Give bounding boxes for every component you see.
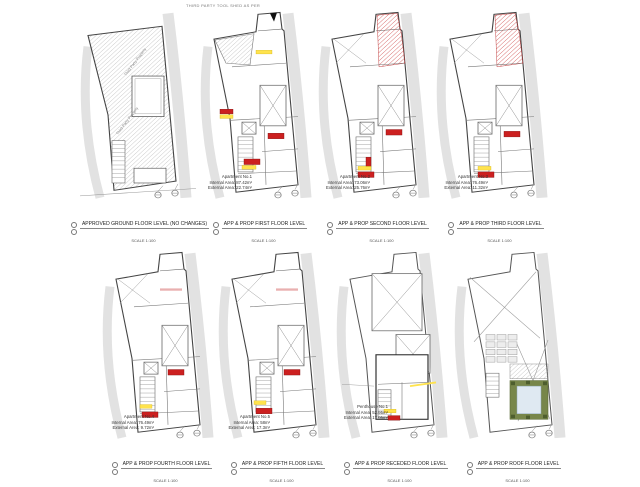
note-highlight — [140, 405, 152, 409]
solar-panel — [497, 334, 506, 340]
roof-courtyard — [517, 386, 541, 414]
panel-title-block: APP & PROP ROOF FLOOR LEVEL SCALE 1:100 — [452, 461, 576, 487]
panel-title-block: APP & PROP FIRST FLOOR LEVEL SCALE 1:100 — [198, 221, 322, 247]
proposed-change-marker — [386, 130, 402, 136]
panel-title-block: APPROVED GROUND FLOOR LEVEL (NO CHANGES)… — [78, 221, 202, 247]
grid-bubble-icon — [71, 222, 77, 235]
note-highlight — [256, 50, 272, 54]
floor-plan-panel-second: Apartment No.2Internal Area: 73.06m²Exte… — [316, 6, 440, 247]
proposed-change-marker — [366, 157, 371, 166]
grid-bubble-icon — [448, 222, 454, 235]
panel-title: APP & PROP FIRST FLOOR LEVEL — [222, 221, 307, 229]
panel-title-block: APP & PROP RECEDED FLOOR LEVEL SCALE 1:1… — [334, 461, 458, 487]
receded-floor-plan-drawing — [334, 246, 454, 458]
drawing-sheet: THIRD PARTY TOOL SHED AS PER Third Party… — [0, 0, 640, 480]
solar-panel — [508, 349, 517, 355]
grid-bubble-icon — [112, 462, 118, 475]
solar-panel — [486, 342, 495, 348]
panel-title: APP & PROP SECOND FLOOR LEVEL — [336, 221, 428, 229]
panel-title-block: APP & PROP FOURTH FLOOR LEVEL SCALE 1:10… — [100, 461, 224, 487]
note-highlight — [220, 115, 233, 119]
grid-bubble-icon — [467, 462, 473, 475]
apartment-info: Apartment No.2Internal Area: 73.06m²Exte… — [310, 174, 370, 191]
proposed-change-marker — [268, 133, 284, 139]
grid-bubble-icon — [231, 462, 237, 475]
apartment-info: Apartment No.3Internal Area: 76.49m²Exte… — [428, 174, 488, 191]
solar-panel — [486, 357, 495, 363]
floor-plan-panel-third: Apartment No.3Internal Area: 76.49m²Exte… — [434, 6, 558, 247]
stair — [256, 377, 271, 412]
panel-title: APPROVED GROUND FLOOR LEVEL (NO CHANGES) — [80, 221, 209, 229]
grid-bubble-icon — [344, 462, 350, 475]
grid-bubble-icon — [327, 222, 333, 235]
floor-plan-panel-receded: Penthouse No.1Internal Area: 52.95m²Exte… — [334, 246, 458, 487]
solar-panel — [486, 334, 495, 340]
floor-plan-panel-fourth: Apartment No.4Internal Area: 76.49m²Exte… — [100, 246, 224, 487]
planter — [511, 415, 515, 419]
panel-scale: SCALE 1:100 — [487, 238, 513, 243]
entrance-recess — [134, 168, 166, 183]
panel-scale: SCALE 1:100 — [369, 238, 395, 243]
panel-scale: SCALE 1:100 — [269, 478, 295, 483]
note-highlight — [242, 165, 256, 169]
ground-floor-plan-drawing: Third Party PropertyThird Party Property — [78, 6, 198, 218]
proposed-change-marker — [504, 131, 520, 137]
solar-panel — [508, 334, 517, 340]
planter — [543, 381, 547, 385]
panel-title-block: APP & PROP SECOND FLOOR LEVEL SCALE 1:10… — [316, 221, 440, 247]
solar-panel — [486, 349, 495, 355]
planter — [526, 381, 530, 385]
panel-title: APP & PROP ROOF FLOOR LEVEL — [476, 461, 562, 469]
panel-title: APP & PROP RECEDED FLOOR LEVEL — [353, 461, 449, 469]
removed-area-hatch — [495, 13, 523, 66]
removed-area-hatch — [377, 13, 405, 66]
note-highlight — [254, 401, 266, 405]
panel-scale: SCALE 1:100 — [387, 478, 413, 483]
planter — [511, 381, 515, 385]
floor-plan-panel-roof: APP & PROP ROOF FLOOR LEVEL SCALE 1:100 — [452, 246, 576, 487]
solar-panel — [508, 342, 517, 348]
apartment-info: Apartment No.4Internal Area: 76.49m²Exte… — [94, 414, 154, 431]
panel-scale: SCALE 1:100 — [251, 238, 277, 243]
apartment-info: Apartment No.5Internal Area: 58m²Externa… — [210, 414, 270, 431]
proposed-change-marker — [284, 370, 300, 376]
solar-panel — [497, 357, 506, 363]
solar-panel — [508, 357, 517, 363]
roof-floor-plan-drawing — [452, 246, 572, 458]
terrace-hatch — [510, 364, 548, 379]
panel-title-block: APP & PROP THIRD FLOOR LEVEL SCALE 1:100 — [434, 221, 558, 247]
proposed-change-marker — [220, 109, 233, 114]
panel-scale: SCALE 1:100 — [153, 478, 179, 483]
floor-plan-panel-ground: Third Party PropertyThird Party Property… — [78, 6, 202, 247]
party-wall-band-left — [459, 287, 474, 438]
terrace-edge — [160, 288, 182, 290]
proposed-change-marker — [388, 416, 400, 421]
proposed-change-marker — [168, 370, 184, 376]
proposed-change-marker — [244, 159, 260, 165]
planter — [526, 416, 530, 420]
floor-plan-panel-fifth: Apartment No.5Internal Area: 58m²Externa… — [216, 246, 340, 487]
stair — [112, 141, 125, 183]
planter — [543, 415, 547, 419]
panel-title: APP & PROP THIRD FLOOR LEVEL — [457, 221, 543, 229]
penthouse-info: Penthouse No.1Internal Area: 52.95m²Exte… — [328, 404, 388, 421]
note-highlight — [358, 166, 371, 170]
terrace-edge — [276, 288, 298, 290]
note-highlight — [478, 166, 491, 170]
grid-bubble-icon — [213, 222, 219, 235]
solar-panel — [497, 349, 506, 355]
proposed-change-marker — [256, 408, 272, 414]
apartment-info: Apartment No.1Internal Area: 87.42m²Exte… — [192, 174, 252, 191]
floor-plan-panel-first: Apartment No.1Internal Area: 87.42m²Exte… — [198, 6, 322, 247]
panel-scale: SCALE 1:100 — [505, 478, 531, 483]
panel-title: APP & PROP FOURTH FLOOR LEVEL — [121, 461, 213, 469]
panel-title: APP & PROP FIFTH FLOOR LEVEL — [240, 461, 325, 469]
solar-panel — [497, 342, 506, 348]
panel-title-block: APP & PROP FIFTH FLOOR LEVEL SCALE 1:100 — [216, 461, 340, 487]
panel-scale: SCALE 1:100 — [131, 238, 157, 243]
